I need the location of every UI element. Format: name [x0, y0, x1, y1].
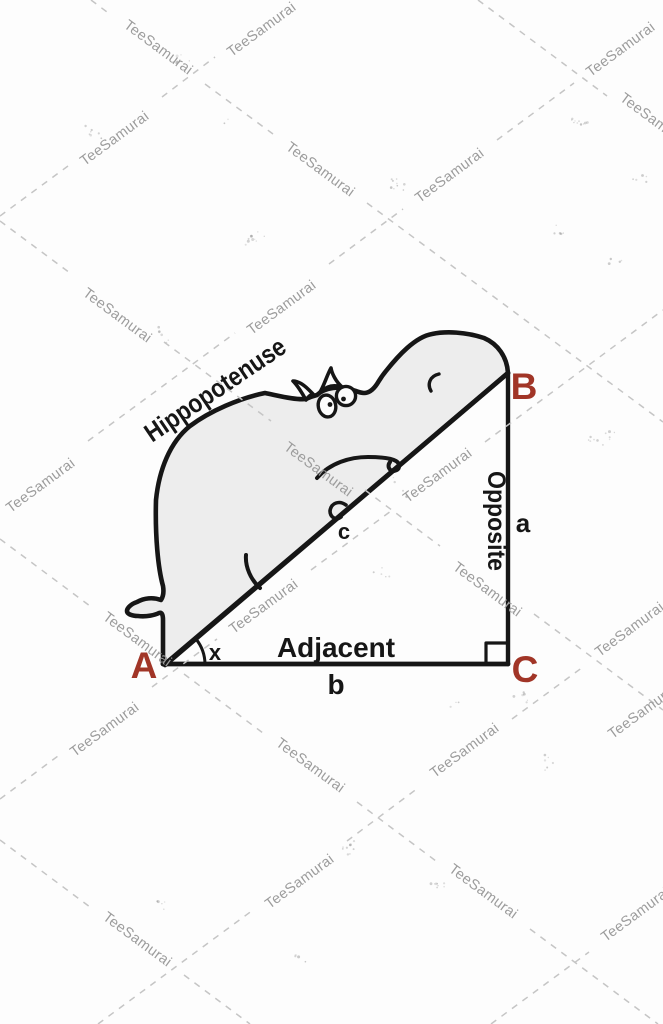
svg-text:Adjacent: Adjacent	[277, 632, 395, 663]
svg-text:x: x	[209, 640, 222, 665]
svg-text:c: c	[338, 519, 350, 544]
svg-text:Opposite: Opposite	[482, 471, 510, 571]
svg-text:B: B	[511, 366, 538, 407]
svg-text:C: C	[512, 649, 539, 690]
svg-text:a: a	[516, 508, 531, 538]
svg-text:b: b	[327, 669, 344, 700]
